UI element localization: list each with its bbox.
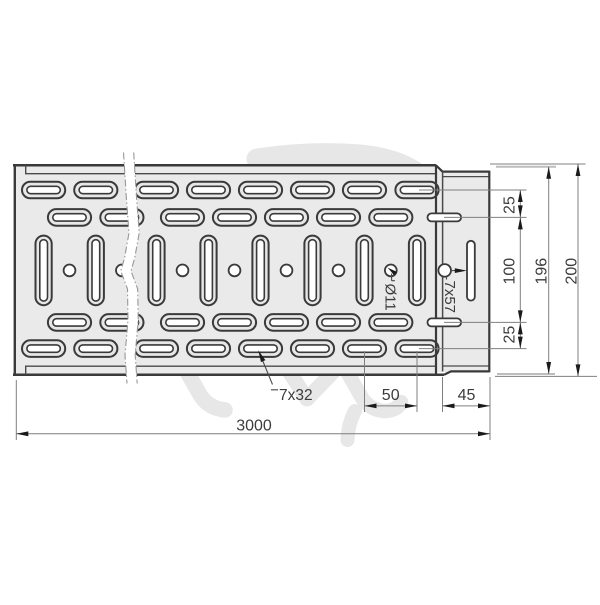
svg-text:100: 100 bbox=[502, 258, 519, 285]
svg-text:25: 25 bbox=[502, 326, 519, 344]
svg-text:3000: 3000 bbox=[236, 418, 272, 435]
svg-text:196: 196 bbox=[533, 258, 550, 285]
svg-text:45: 45 bbox=[458, 387, 476, 404]
svg-text:25: 25 bbox=[502, 196, 519, 214]
svg-text:200: 200 bbox=[563, 258, 580, 285]
svg-text:7x32: 7x32 bbox=[279, 387, 313, 404]
svg-text:Ø11: Ø11 bbox=[382, 284, 399, 311]
svg-text:50: 50 bbox=[382, 387, 400, 404]
svg-text:7x57: 7x57 bbox=[441, 281, 458, 314]
